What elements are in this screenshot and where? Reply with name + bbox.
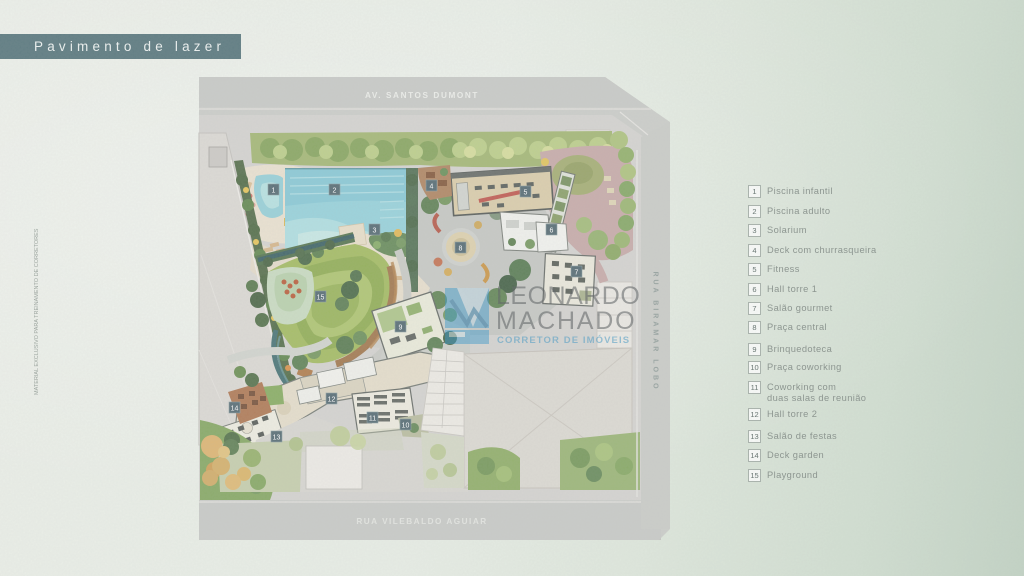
svg-text:8: 8	[459, 246, 463, 253]
svg-text:9: 9	[399, 325, 403, 332]
svg-text:14: 14	[231, 406, 239, 413]
svg-text:15: 15	[317, 295, 325, 302]
svg-text:RUA VILEBALDO AGUIAR: RUA VILEBALDO AGUIAR	[356, 517, 487, 526]
svg-text:7: 7	[575, 270, 579, 277]
svg-text:3: 3	[373, 228, 377, 235]
svg-text:12: 12	[328, 397, 336, 404]
svg-text:11: 11	[369, 416, 376, 423]
svg-text:2: 2	[333, 188, 337, 195]
svg-text:10: 10	[402, 423, 410, 430]
svg-text:AV. SANTOS DUMONT: AV. SANTOS DUMONT	[365, 91, 479, 100]
svg-text:13: 13	[273, 435, 281, 442]
svg-text:4: 4	[430, 184, 434, 191]
svg-text:6: 6	[550, 228, 554, 235]
svg-text:5: 5	[524, 190, 528, 197]
svg-text:1: 1	[272, 188, 276, 195]
